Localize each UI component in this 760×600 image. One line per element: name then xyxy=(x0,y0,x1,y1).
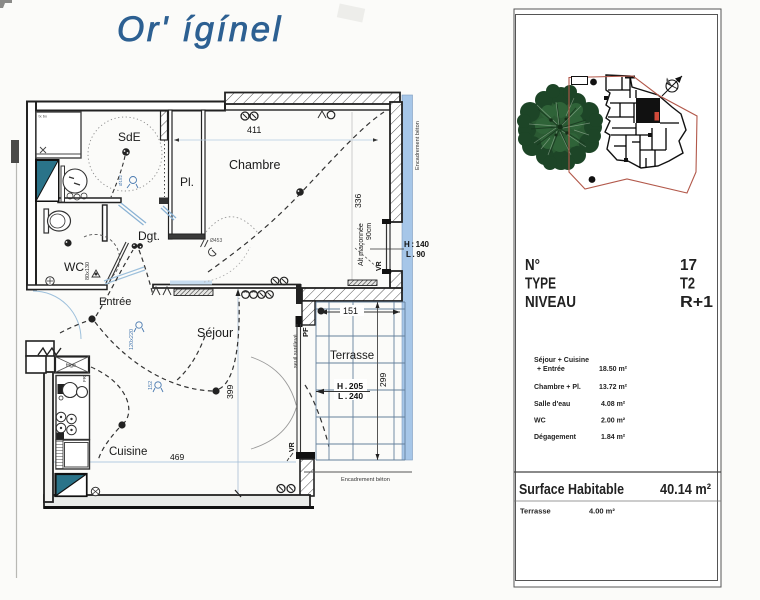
svg-text:SdE: SdE xyxy=(118,130,141,144)
svg-text:Terrasse: Terrasse xyxy=(520,507,551,516)
svg-text:151: 151 xyxy=(343,306,358,316)
svg-text:Terrasse: Terrasse xyxy=(330,350,374,362)
svg-text:WC: WC xyxy=(64,260,84,274)
svg-text:469: 469 xyxy=(170,452,184,462)
svg-text:Séjour + Cuisine: Séjour + Cuisine xyxy=(534,357,589,364)
svg-text:18.50 m²: 18.50 m² xyxy=(599,366,628,373)
svg-text:+ Entrée: + Entrée xyxy=(537,366,565,373)
svg-text:T2: T2 xyxy=(680,276,695,293)
svg-text:90cm: 90cm xyxy=(366,223,373,240)
svg-text:4.08 m²: 4.08 m² xyxy=(601,401,626,408)
svg-text:Or' ígínel: Or' ígínel xyxy=(117,10,283,49)
svg-text:frigo: frigo xyxy=(66,363,76,369)
svg-text:VR: VR xyxy=(376,261,383,271)
svg-text:FR: FR xyxy=(82,375,87,382)
svg-text:40.14 m²: 40.14 m² xyxy=(660,481,711,498)
svg-text:WC: WC xyxy=(534,418,546,425)
svg-text:Ø152: Ø152 xyxy=(118,174,123,186)
svg-text:Dgt.: Dgt. xyxy=(138,229,160,243)
svg-text:Pl.: Pl. xyxy=(180,175,194,189)
svg-text:N°: N° xyxy=(525,257,540,274)
svg-text:411: 411 xyxy=(247,125,261,135)
svg-text:13.72 m²: 13.72 m² xyxy=(599,384,628,391)
svg-text:Séjour: Séjour xyxy=(197,326,233,340)
svg-text:336: 336 xyxy=(353,194,363,208)
svg-text:Alt maçonnée: Alt maçonnée xyxy=(358,223,365,266)
svg-text:tx bx: tx bx xyxy=(39,114,47,119)
svg-text:H . 205: H . 205 xyxy=(337,381,363,391)
svg-text:152: 152 xyxy=(148,381,154,390)
svg-text:Chambre: Chambre xyxy=(229,158,280,172)
svg-text:Ø453: Ø453 xyxy=(210,238,222,244)
svg-text:L . 240: L . 240 xyxy=(338,391,363,401)
svg-text:PF: PF xyxy=(301,327,310,337)
svg-text:L . 90: L . 90 xyxy=(406,250,426,259)
svg-text:R+1: R+1 xyxy=(680,294,713,311)
svg-text:80x130: 80x130 xyxy=(85,262,91,280)
svg-text:120x220: 120x220 xyxy=(129,329,135,350)
svg-text:1.84 m²: 1.84 m² xyxy=(601,434,626,441)
svg-text:VR: VR xyxy=(289,442,296,452)
svg-text:Chambre + Pl.: Chambre + Pl. xyxy=(534,384,581,391)
svg-text:H : 140: H : 140 xyxy=(404,240,430,249)
svg-text:Encadrement béton: Encadrement béton xyxy=(341,477,390,483)
svg-text:4.00 m²: 4.00 m² xyxy=(589,507,615,516)
svg-text:TYPE: TYPE xyxy=(525,276,556,293)
svg-text:Salle d'eau: Salle d'eau xyxy=(534,401,570,408)
svg-text:Dégagement: Dégagement xyxy=(534,434,577,441)
svg-text:2.00 m²: 2.00 m² xyxy=(601,418,626,425)
svg-text:299: 299 xyxy=(378,373,388,387)
svg-text:seuil surélevé: seuil surélevé xyxy=(293,334,299,368)
svg-text:17: 17 xyxy=(680,257,697,274)
svg-text:NIVEAU: NIVEAU xyxy=(525,294,576,311)
svg-text:Cuisine: Cuisine xyxy=(109,446,147,458)
svg-text:399: 399 xyxy=(225,385,235,399)
svg-text:Surface Habitable: Surface Habitable xyxy=(519,481,624,498)
svg-text:Encadrement béton: Encadrement béton xyxy=(415,121,421,170)
